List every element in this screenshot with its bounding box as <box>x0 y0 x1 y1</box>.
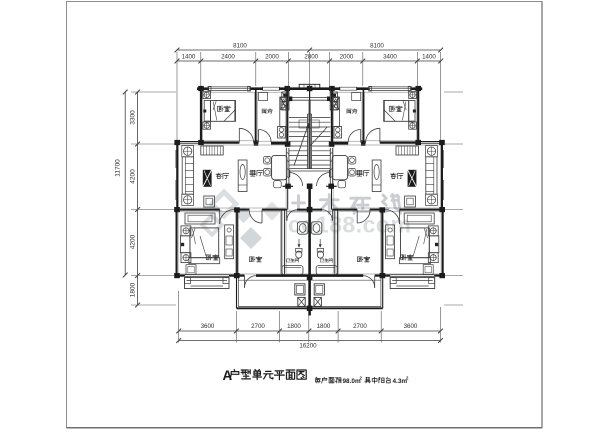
svg-text:1800: 1800 <box>317 323 331 330</box>
svg-text:3600: 3600 <box>201 323 215 330</box>
svg-text:2800: 2800 <box>304 54 318 61</box>
svg-text:11700: 11700 <box>115 159 122 177</box>
svg-text:2000: 2000 <box>265 54 279 61</box>
svg-text:1800: 1800 <box>129 282 136 297</box>
svg-text:2700: 2700 <box>353 323 367 330</box>
svg-text:8100: 8100 <box>370 43 384 50</box>
svg-text:8100: 8100 <box>233 43 247 50</box>
svg-text:3300: 3300 <box>129 110 136 125</box>
svg-text:2700: 2700 <box>251 323 265 330</box>
svg-text:1400: 1400 <box>182 54 196 61</box>
svg-text:2400: 2400 <box>221 54 235 61</box>
svg-text:1400: 1400 <box>422 54 436 61</box>
svg-text:4200: 4200 <box>129 234 136 249</box>
svg-text:16200: 16200 <box>299 343 317 350</box>
svg-text:1800: 1800 <box>287 323 301 330</box>
svg-text:2000: 2000 <box>340 54 354 61</box>
svg-text:4200: 4200 <box>129 169 136 184</box>
svg-text:3600: 3600 <box>404 323 418 330</box>
svg-text:98.0m: 98.0m <box>343 378 361 385</box>
svg-text:3400: 3400 <box>383 54 397 61</box>
